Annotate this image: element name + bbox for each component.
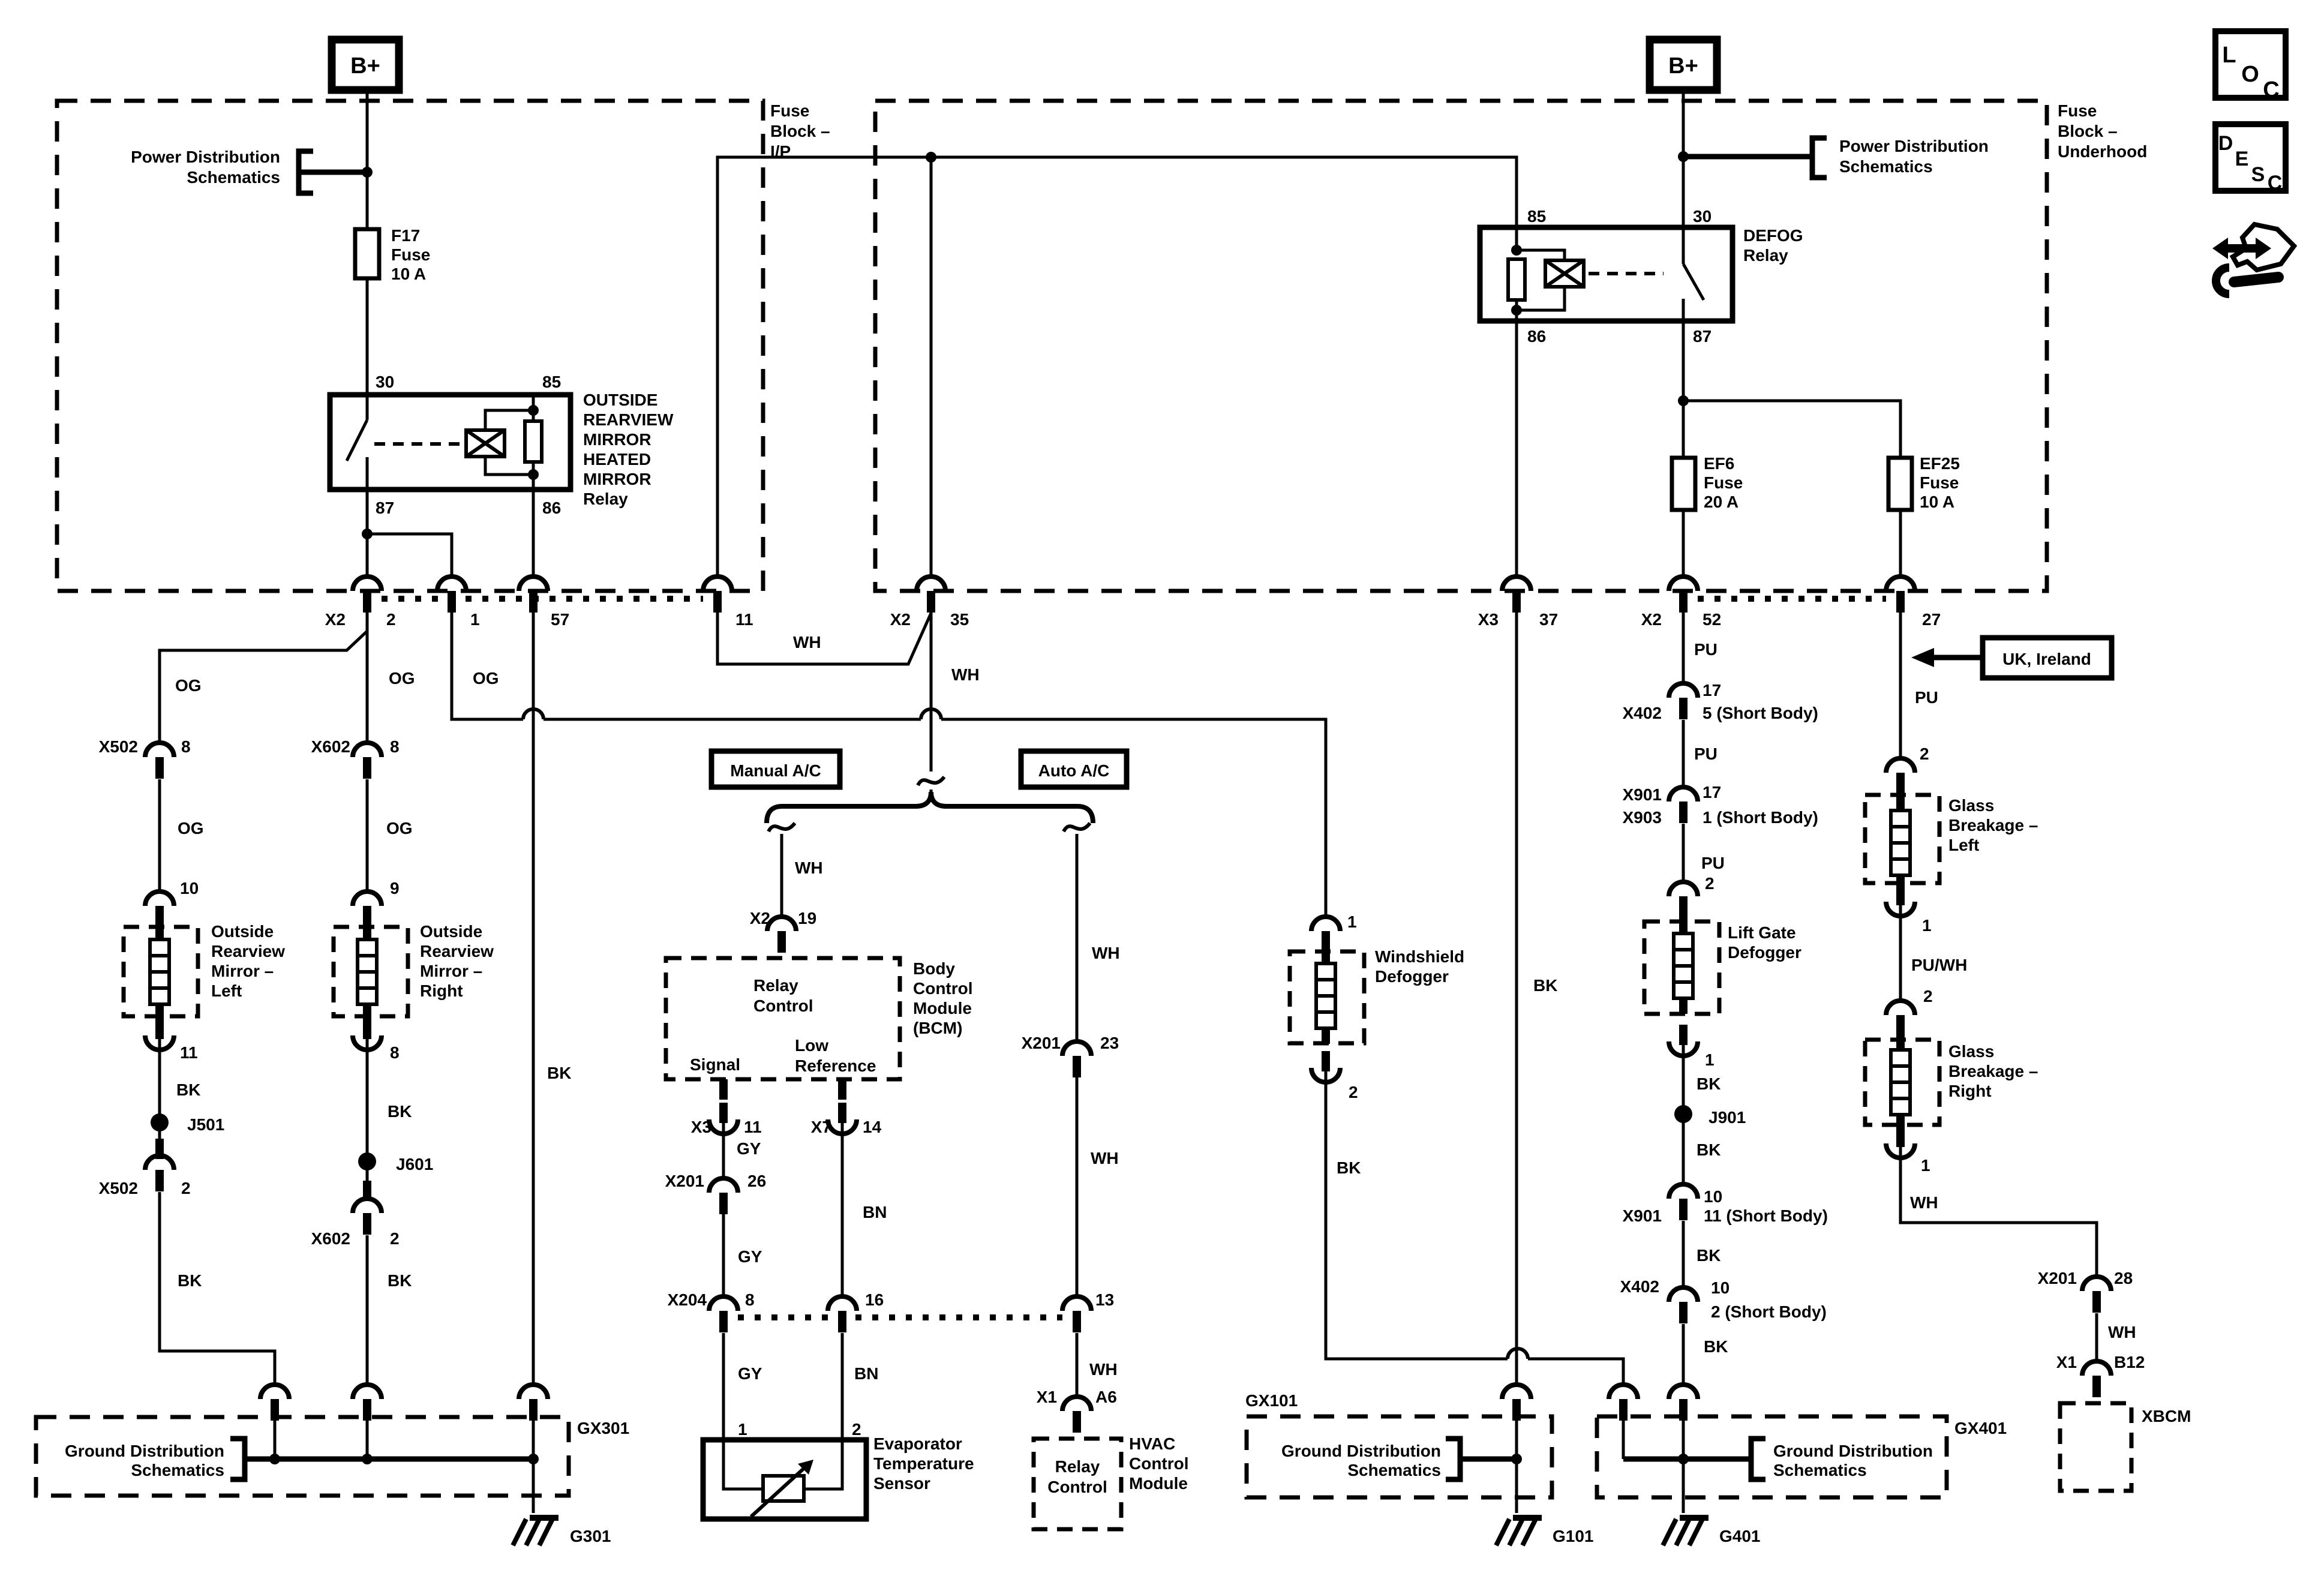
fuse-ef25 — [1888, 458, 1912, 510]
glassl-name-2: Breakage – — [1948, 816, 2038, 834]
gx301-text-2: Schematics — [131, 1461, 224, 1479]
pin-52: 52 — [1703, 610, 1721, 629]
conn-x901-name: X901 — [1623, 785, 1662, 804]
pin-x2-left: X2 — [325, 610, 346, 629]
pin-35: 35 — [950, 610, 969, 629]
bcm-low: Low — [795, 1036, 828, 1055]
fuse-ef6-1: EF6 — [1704, 454, 1734, 473]
wire-wh-35: WH — [951, 665, 980, 684]
evap-pin-2: 2 — [852, 1420, 861, 1439]
pin-9: 9 — [390, 879, 400, 897]
gx401-text-2: Schematics — [1773, 1461, 1867, 1479]
liftgate-defogger-element — [1674, 918, 1693, 1014]
splice-j901: J901 — [1709, 1108, 1746, 1127]
wire-og-5: OG — [386, 819, 413, 837]
note-uk-ireland: UK, Ireland — [2002, 650, 2091, 668]
conn-x1-b12-pin: B12 — [2114, 1353, 2145, 1371]
wire-wh-auto2: WH — [1091, 1149, 1119, 1167]
fuseblock-ip-2: Block – — [770, 122, 830, 140]
relay1-name-5: MIRROR — [583, 470, 651, 488]
gx301-text-1: Ground Distribution — [65, 1442, 224, 1460]
fuse-ef6-3: 20 A — [1704, 493, 1739, 511]
wd-name-1: Windshield — [1375, 947, 1464, 966]
wire-pu-2: PU — [1694, 745, 1718, 763]
fuse-ef6-2: Fuse — [1704, 473, 1743, 492]
relay2-pin86: 86 — [1527, 327, 1546, 346]
conn-x602-2-pin: 2 — [390, 1229, 400, 1248]
mirror-left-3: Mirror – — [211, 962, 274, 980]
fuse-ef25-2: Fuse — [1920, 473, 1959, 492]
wd-pin-2: 2 — [1349, 1083, 1358, 1101]
wire-bk-37: BK — [1533, 976, 1557, 995]
glass-breakage-right-element — [1891, 1034, 1910, 1130]
g401-name: G401 — [1719, 1527, 1761, 1545]
bcm-name-2: Control — [913, 979, 973, 998]
liftgate-name-1: Lift Gate — [1728, 923, 1796, 942]
conn-x901b-11: 11 (Short Body) — [1704, 1206, 1828, 1225]
conn-x1-a6-pin: A6 — [1095, 1388, 1117, 1406]
conn-x402b-name: X402 — [1620, 1277, 1659, 1296]
wire-bn-2: BN — [854, 1364, 878, 1383]
liftgate-name-2: Defogger — [1728, 943, 1801, 962]
wire-og-4: OG — [178, 819, 204, 837]
wiring-diagram-page: LOCDESCB+B+FuseBlock –I/PFuseBlock –Unde… — [0, 0, 2324, 1573]
conn-x201-28-pin: 28 — [2114, 1269, 2133, 1287]
wire-gy-1: GY — [737, 1139, 761, 1158]
mirror-left-element — [150, 924, 169, 1020]
pin-8b: 8 — [390, 1043, 400, 1062]
fuse-f17-3: 10 A — [391, 265, 426, 283]
wire-og-1: OG — [175, 676, 202, 695]
conn-x901b-10: 10 — [1704, 1187, 1722, 1206]
pin-27: 27 — [1922, 610, 1941, 629]
wire-gy-3: GY — [738, 1364, 762, 1383]
glassr-name-2: Breakage – — [1948, 1062, 2038, 1080]
evap-pin-1: 1 — [738, 1420, 747, 1439]
mirror-left-1: Outside — [211, 922, 274, 941]
glassl-pin-2: 2 — [1920, 745, 1929, 763]
gx401-text-1: Ground Distribution — [1773, 1442, 1933, 1460]
relay1-name-3: MIRROR — [583, 430, 651, 449]
mirror-left-2: Rearview — [211, 942, 285, 960]
relay2-name-2: Relay — [1743, 246, 1788, 265]
glassl-name-1: Glass — [1948, 796, 1994, 815]
bcm-relay: Relay — [753, 976, 798, 995]
powerdist-right-1: Power Distribution — [1839, 137, 1989, 155]
splice-j501: J501 — [187, 1115, 224, 1134]
background — [0, 0, 2324, 1573]
desc-letter-d: D — [2218, 132, 2233, 155]
wire-bn-1: BN — [863, 1203, 887, 1221]
wire-wh-gb: WH — [1910, 1193, 1938, 1212]
wire-og-2: OG — [389, 669, 415, 688]
glassr-pin-2: 2 — [1923, 987, 1933, 1005]
conn-x1-a6-name: X1 — [1037, 1388, 1057, 1406]
fuse-f17-2: Fuse — [391, 245, 430, 264]
glassl-pin-1: 1 — [1922, 916, 1932, 935]
conn-x204-pin16: 16 — [865, 1290, 884, 1309]
fuse-ef25-1: EF25 — [1920, 454, 1960, 473]
pin-x2-35c: X2 — [890, 610, 911, 629]
desc-letter-e: E — [2235, 148, 2249, 170]
fuse-f17 — [355, 229, 379, 278]
wire-bk-m3: BK — [1697, 1246, 1721, 1265]
glassr-name-3: Right — [1948, 1082, 1992, 1100]
conn-x2-19-name: X2 — [750, 909, 770, 927]
relay1-name-6: Relay — [583, 490, 628, 508]
wire-puwh: PU/WH — [1911, 956, 1967, 974]
fuse-f17-1: F17 — [391, 226, 420, 245]
conn-x901-1: 1 (Short Body) — [1703, 808, 1818, 827]
conn-x3-11-pin: 11 — [744, 1118, 762, 1136]
conn-x502-2-name: X502 — [99, 1179, 138, 1197]
relay1-pin86: 86 — [542, 499, 561, 517]
gx401-name: GX401 — [1954, 1419, 2007, 1437]
mirror-right-2: Rearview — [420, 942, 494, 960]
relay2-pin30: 30 — [1693, 207, 1712, 226]
hvac-name-2: Control — [1129, 1454, 1189, 1473]
wire-pu-4: PU — [1915, 688, 1938, 707]
mirror-right-3: Mirror – — [420, 962, 482, 980]
pin-10: 10 — [180, 879, 199, 897]
wire-wh-manual: WH — [795, 858, 823, 877]
loc-letter-c: C — [2263, 77, 2279, 103]
wire-bk-m4: BK — [1704, 1337, 1728, 1356]
relay1-name-1: OUTSIDE — [583, 391, 657, 409]
relay1-pin85: 85 — [542, 373, 561, 391]
powerdist-left-2: Schematics — [187, 168, 280, 187]
fuseblock-ip-1: Fuse — [770, 101, 809, 120]
conn-x201-23-pin: 23 — [1100, 1034, 1119, 1052]
gx101-name: GX101 — [1245, 1391, 1298, 1410]
conn-x602-8-name: X602 — [311, 737, 350, 756]
relay2-pin87: 87 — [1693, 327, 1712, 346]
conn-x402b-10: 10 — [1711, 1278, 1730, 1297]
option-manual-ac: Manual A/C — [730, 761, 821, 780]
desc-letter-s: S — [2251, 163, 2265, 186]
pin-11: 11 — [735, 610, 753, 629]
glassr-name-1: Glass — [1948, 1042, 1994, 1061]
conn-x204-name: X204 — [668, 1290, 707, 1309]
relay1-pin87: 87 — [376, 499, 394, 517]
pin-37: 37 — [1539, 610, 1558, 629]
wire-bk-l2: BK — [178, 1271, 202, 1290]
wire-bk-r2: BK — [388, 1271, 412, 1290]
hvac-relay: Relay — [1055, 1457, 1100, 1476]
powerdist-right-2: Schematics — [1839, 157, 1933, 176]
loc-letter-l: L — [2222, 43, 2236, 68]
relay1-name-2: REARVIEW — [583, 410, 674, 429]
gx101-text-1: Ground Distribution — [1281, 1442, 1441, 1460]
conn-x7-14-pin: 14 — [863, 1118, 882, 1136]
conn-x3-11-name: X3 — [691, 1118, 711, 1136]
wire-wh-hvac: WH — [1089, 1360, 1118, 1379]
hvac-name-3: Module — [1129, 1474, 1188, 1493]
conn-x502-8-name: X502 — [99, 737, 138, 756]
conn-x402a-17: 17 — [1703, 681, 1721, 700]
conn-x502-2-pin: 2 — [181, 1179, 191, 1197]
pin-11b: 11 — [180, 1043, 198, 1062]
conn-x901-17: 17 — [1703, 783, 1721, 801]
relay1-name-4: HEATED — [583, 450, 651, 469]
conn-x201-26-pin: 26 — [747, 1172, 766, 1190]
bcm-control: Control — [753, 996, 813, 1015]
conn-x201-23-name: X201 — [1022, 1034, 1061, 1052]
mirror-right-4: Right — [420, 981, 463, 1000]
powerdist-left-1: Power Distribution — [131, 148, 280, 166]
wire-bk-wd: BK — [1337, 1158, 1361, 1177]
wire-bk-57: BK — [547, 1064, 571, 1082]
mirror-right-element — [358, 924, 377, 1020]
pin-2: 2 — [386, 610, 396, 629]
conn-x204-pin8: 8 — [745, 1290, 755, 1309]
conn-x602-2-name: X602 — [311, 1229, 350, 1248]
liftgate-pin-2: 2 — [1705, 874, 1715, 893]
conn-x402b-2: 2 (Short Body) — [1711, 1302, 1827, 1321]
wire-gy-2: GY — [738, 1247, 762, 1266]
fuse-ef25-3: 10 A — [1920, 493, 1954, 511]
conn-x602-8-pin: 8 — [390, 737, 400, 756]
fuseblock-ip-3: I/P — [770, 142, 791, 161]
conn-x402a-5: 5 (Short Body) — [1703, 704, 1818, 722]
conn-x901b-name: X901 — [1623, 1206, 1662, 1225]
glassl-name-3: Left — [1948, 836, 1979, 854]
gx101-text-2: Schematics — [1347, 1461, 1441, 1479]
liftgate-pin-1: 1 — [1705, 1050, 1715, 1069]
pin-1: 1 — [470, 610, 480, 629]
wire-og-3: OG — [473, 669, 499, 688]
conn-x903-name: X903 — [1623, 808, 1662, 827]
option-auto-ac: Auto A/C — [1038, 761, 1110, 780]
bplus-right: B+ — [1668, 53, 1698, 79]
wire-bk-r1: BK — [388, 1102, 412, 1121]
relay2-pin85: 85 — [1527, 207, 1546, 226]
wire-pu-3: PU — [1701, 854, 1725, 872]
bcm-name-3: Module — [913, 999, 972, 1017]
relay1-pin30: 30 — [376, 373, 394, 391]
conn-x204-pin13: 13 — [1095, 1290, 1114, 1309]
pin-57: 57 — [551, 610, 569, 629]
bcm-reference: Reference — [795, 1056, 876, 1075]
pin-x2-52c: X2 — [1641, 610, 1662, 629]
fuseblock-uh-3: Underhood — [2058, 142, 2147, 161]
g101-name: G101 — [1553, 1527, 1594, 1545]
bcm-name-1: Body — [913, 959, 955, 978]
evap-name-3: Sensor — [873, 1474, 930, 1493]
wire-wh-auto1: WH — [1092, 944, 1120, 962]
conn-x201-26-name: X201 — [665, 1172, 704, 1190]
g301-name: G301 — [570, 1527, 611, 1545]
wd-pin-1: 1 — [1347, 912, 1357, 931]
wire-wh-xbcm: WH — [2108, 1323, 2136, 1341]
evap-name-1: Evaporator — [873, 1434, 962, 1453]
conn-x2-19-pin: 19 — [798, 909, 816, 927]
mirror-left-4: Left — [211, 981, 242, 1000]
wd-name-2: Defogger — [1375, 967, 1449, 986]
wire-bk-m2: BK — [1697, 1140, 1721, 1159]
wire-bk-l1: BK — [176, 1080, 200, 1099]
hvac-name-1: HVAC — [1129, 1434, 1175, 1453]
glassr-pin-1: 1 — [1921, 1156, 1930, 1175]
conn-x1-b12-name: X1 — [2056, 1353, 2077, 1371]
mirror-right-1: Outside — [420, 922, 482, 941]
fuse-ef6 — [1672, 458, 1695, 510]
wire-bk-m1: BK — [1697, 1074, 1721, 1093]
conn-x402a-name: X402 — [1623, 704, 1662, 722]
windshield-defogger-element — [1316, 948, 1335, 1044]
wire-wh-jog: WH — [793, 633, 821, 652]
relay2-name-1: DEFOG — [1743, 226, 1803, 245]
evap-name-2: Temperature — [873, 1454, 974, 1473]
wire-pu-1: PU — [1694, 640, 1718, 659]
glass-breakage-left-element — [1891, 795, 1910, 891]
conn-x7-14-name: X7 — [811, 1118, 831, 1136]
wiring-diagram: LOCDESCB+B+FuseBlock –I/PFuseBlock –Unde… — [0, 0, 2324, 1573]
gx301-name: GX301 — [577, 1419, 629, 1437]
fuseblock-uh-1: Fuse — [2058, 101, 2097, 120]
bplus-left: B+ — [350, 53, 380, 79]
bcm-name-4: (BCM) — [913, 1019, 962, 1037]
bcm-signal: Signal — [690, 1055, 740, 1074]
splice-j601: J601 — [396, 1155, 433, 1173]
splice-j901-dot — [1674, 1105, 1692, 1123]
conn-x502-8-pin: 8 — [181, 737, 191, 756]
conn-x201-28-name: X201 — [2038, 1269, 2077, 1287]
loc-letter-o: O — [2241, 62, 2259, 87]
hvac-control: Control — [1047, 1478, 1107, 1496]
fuseblock-uh-2: Block – — [2058, 122, 2118, 140]
desc-letter-c: C — [2268, 172, 2283, 194]
pin-x3-37c: X3 — [1478, 610, 1499, 629]
xbcm-name: XBCM — [2142, 1407, 2191, 1425]
